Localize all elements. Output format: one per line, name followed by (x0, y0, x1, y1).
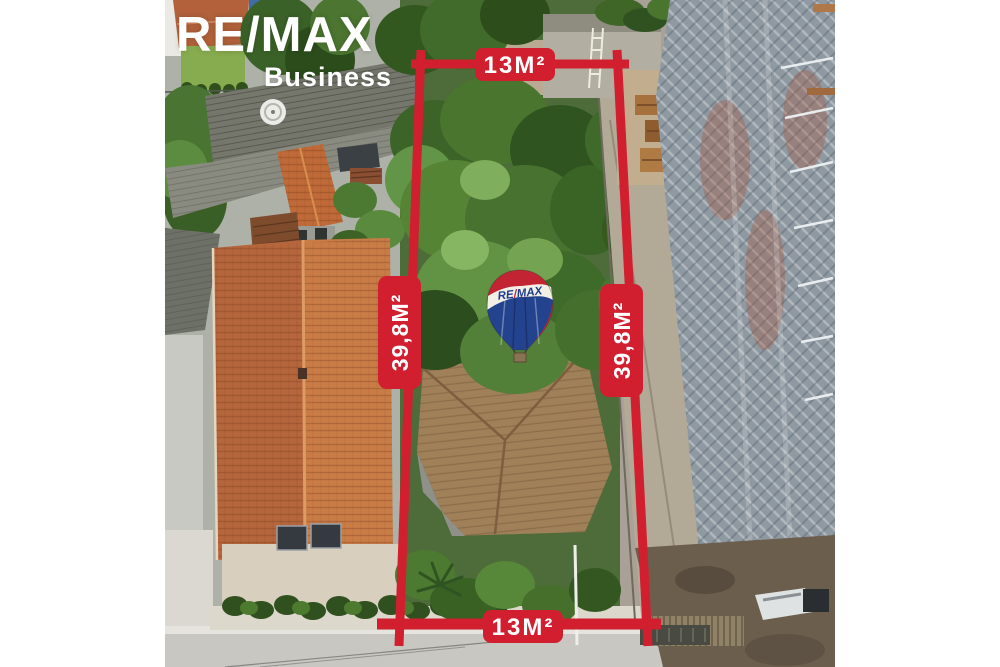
listing-photo-card: 13M² 13M² 39,8M² 39,8M² RE/MAX (0, 0, 1000, 667)
right-depth-label: 39,8M² (609, 302, 635, 380)
top-width-label: 13M² (484, 52, 547, 79)
right-depth-badge: 39,8M² (600, 284, 643, 397)
aerial-photo: 13M² 13M² 39,8M² 39,8M² RE/MAX (165, 0, 835, 667)
left-depth-badge: 39,8M² (378, 276, 421, 389)
top-width-badge: 13M² (475, 48, 555, 81)
neighbor-houses-left (165, 0, 415, 626)
bottom-width-badge: 13M² (483, 610, 563, 643)
street (165, 626, 685, 667)
utility-pole (575, 545, 577, 645)
balloon-basket (514, 353, 526, 362)
patio (222, 544, 400, 610)
main-orange-roof-house (213, 238, 393, 560)
left-depth-label: 39,8M² (387, 294, 413, 372)
construction-yard (635, 535, 835, 667)
parked-car (337, 143, 380, 172)
bottom-width-label: 13M² (492, 614, 555, 641)
